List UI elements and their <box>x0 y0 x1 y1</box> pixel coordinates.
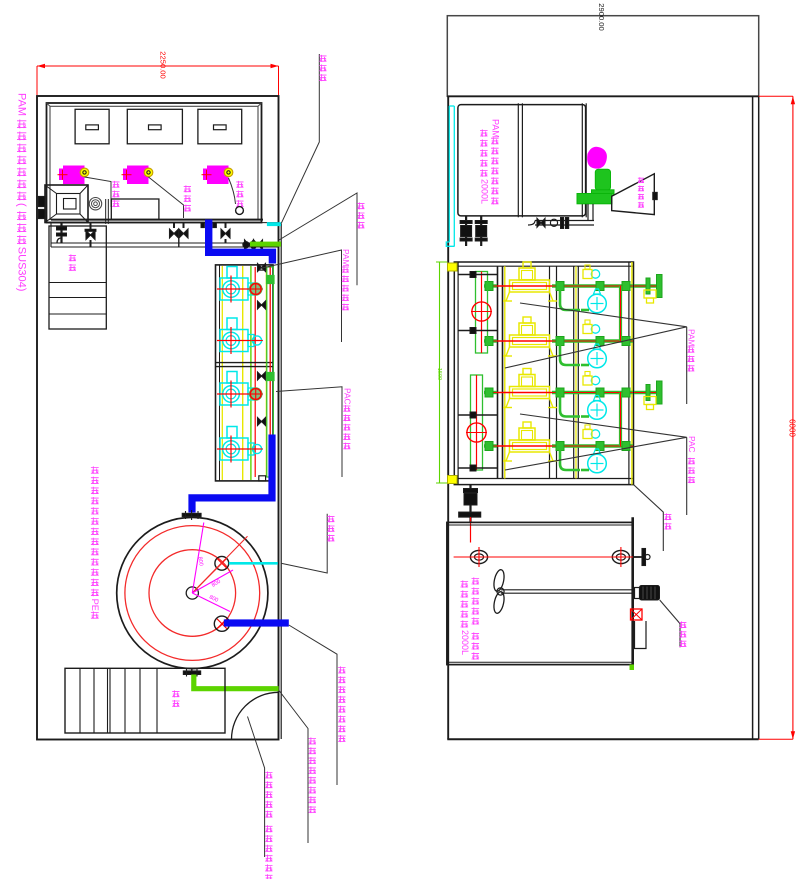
svg-text:1500: 1500 <box>436 368 442 380</box>
svg-text:2900.00: 2900.00 <box>597 3 606 30</box>
svg-text:6000: 6000 <box>788 419 797 437</box>
svg-text:2000L: 2000L <box>460 630 470 655</box>
svg-text:PAM: PAM <box>341 249 351 267</box>
svg-text:PE: PE <box>90 599 100 611</box>
svg-text:SUS304): SUS304) <box>16 247 28 292</box>
svg-text:(: ( <box>16 203 28 207</box>
svg-text:PAM: PAM <box>490 119 500 138</box>
svg-text:PAC: PAC <box>343 388 353 405</box>
svg-text:2250.00: 2250.00 <box>159 51 168 78</box>
svg-text:800: 800 <box>197 556 204 566</box>
svg-text:PAC: PAC <box>687 436 697 453</box>
svg-text:PAM: PAM <box>16 93 28 116</box>
svg-text:2000L: 2000L <box>479 179 489 204</box>
svg-text:PAM: PAM <box>687 329 697 347</box>
